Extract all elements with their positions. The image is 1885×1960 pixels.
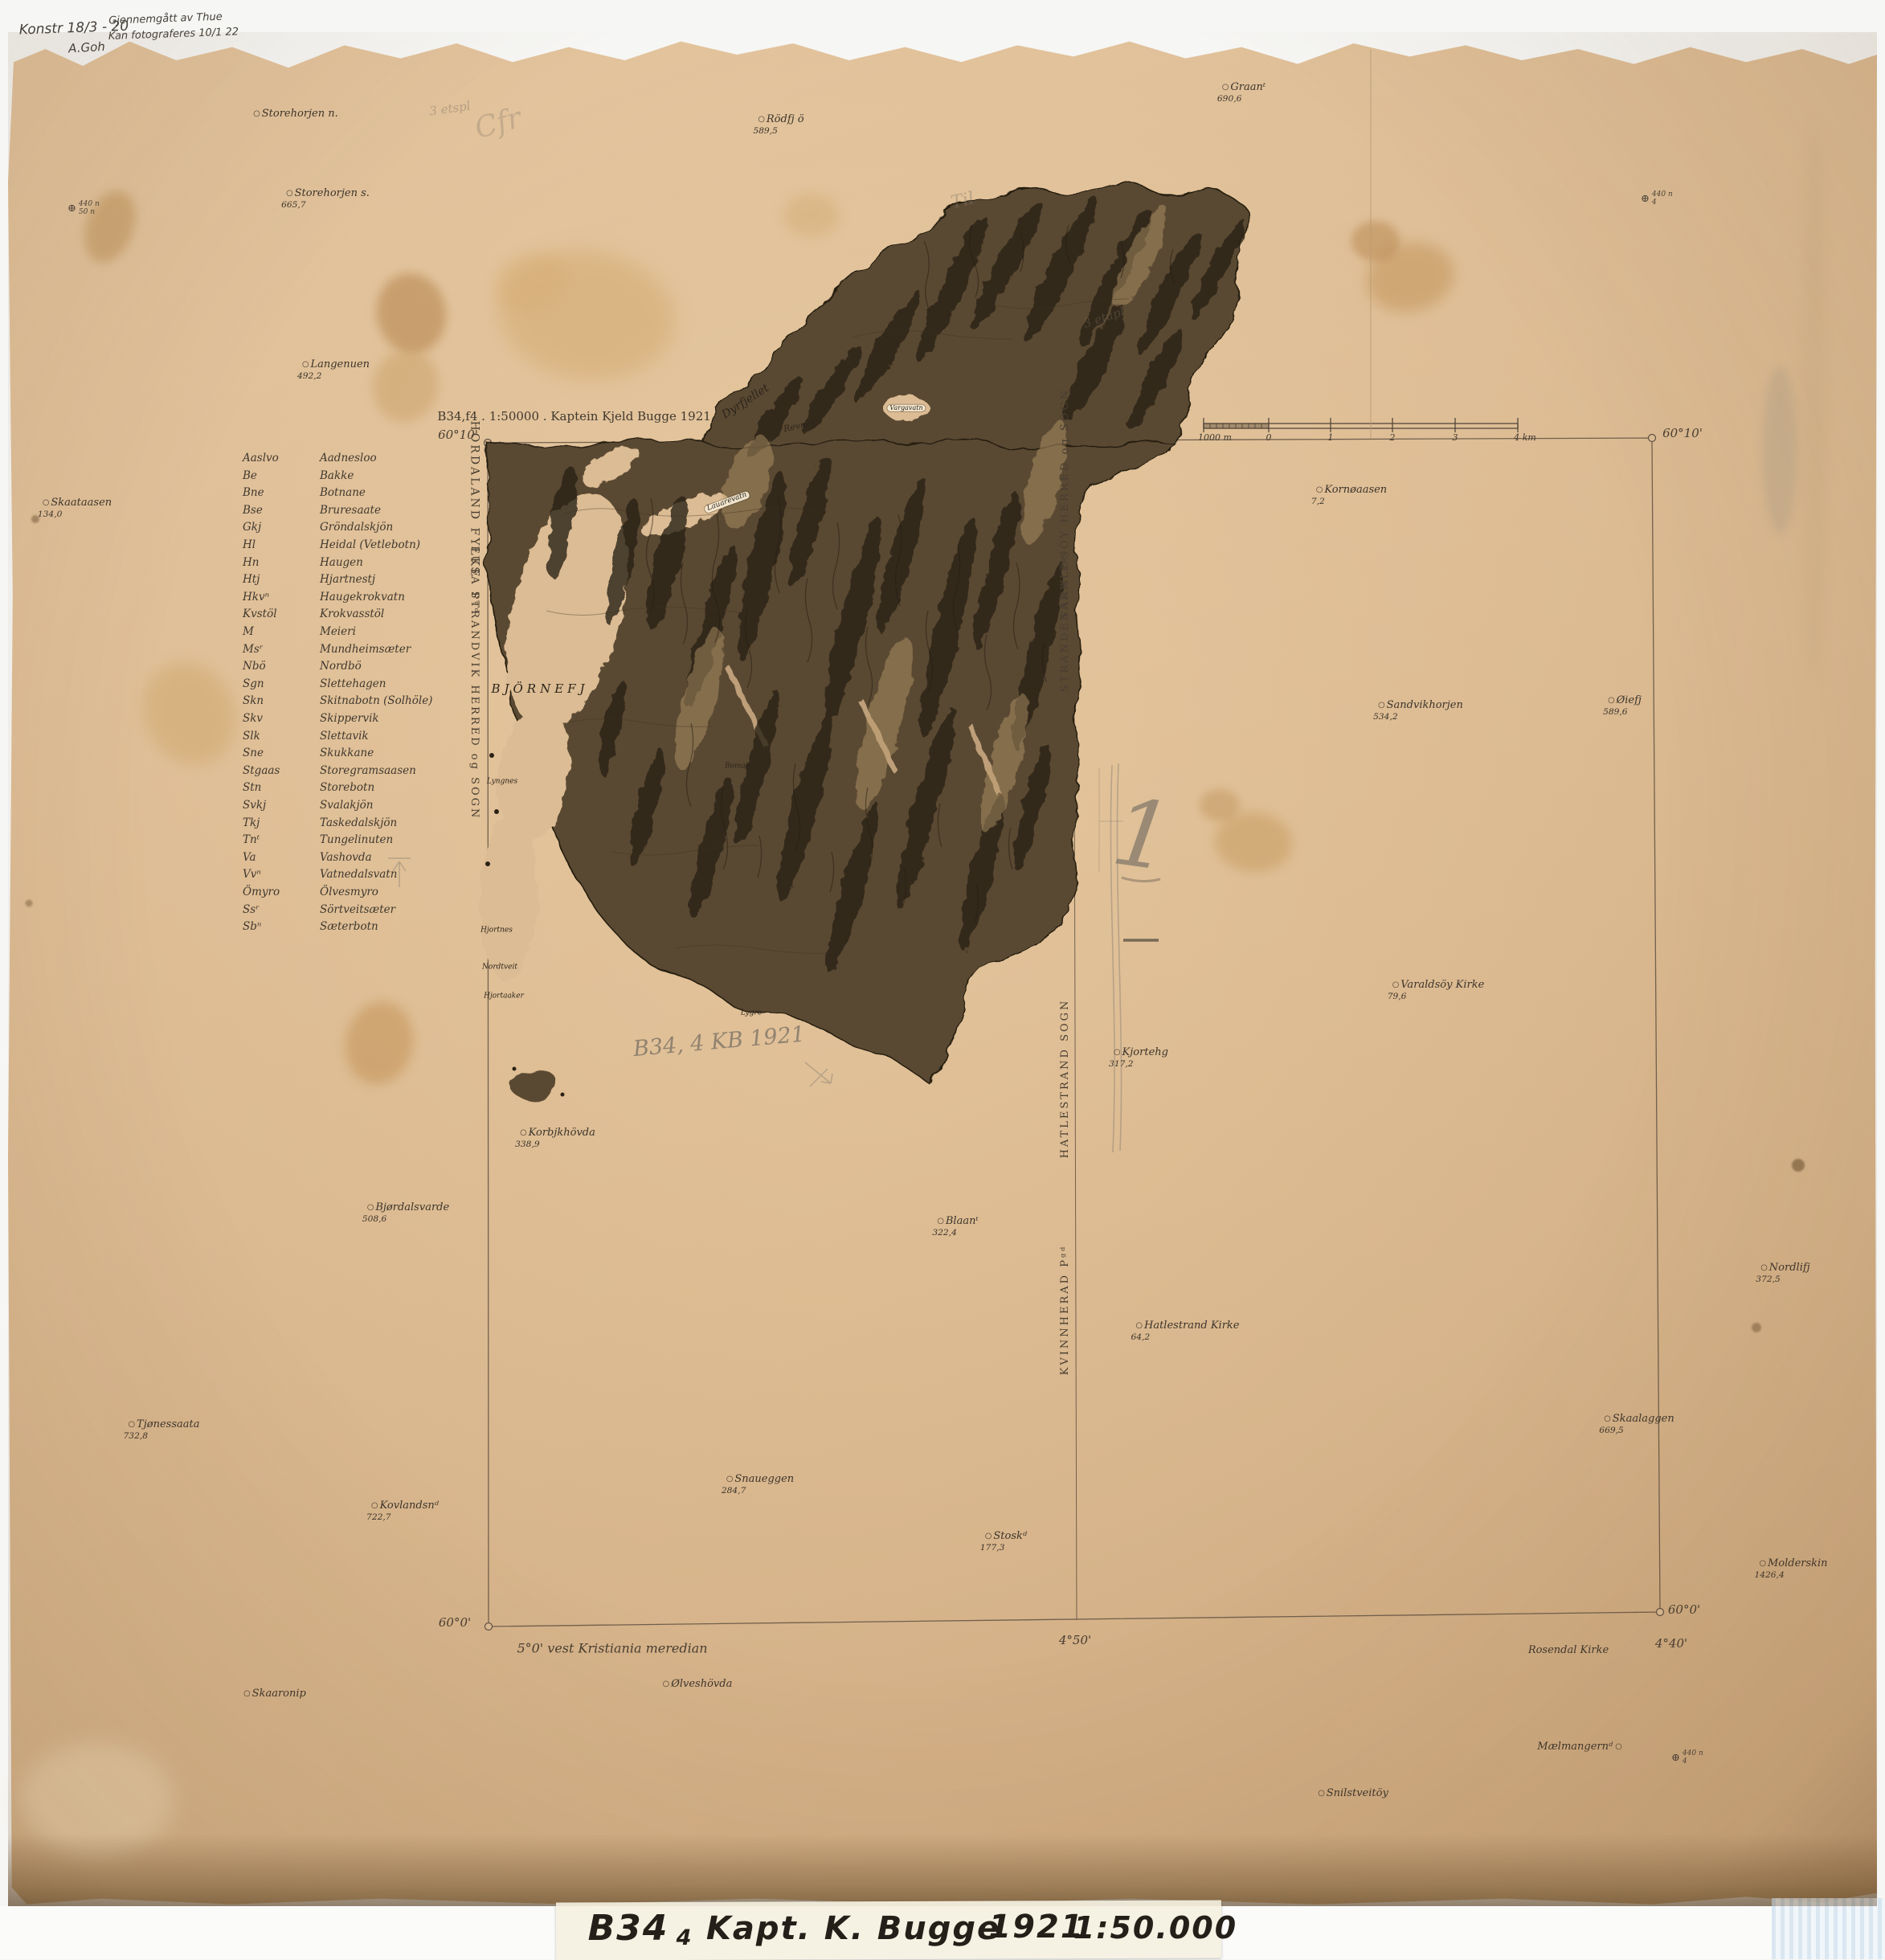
archive-note: Gjennemgått av Thue (108, 12, 223, 27)
paper-sheet (8, 32, 1877, 1906)
caption-part-text: 4 (677, 1925, 693, 1950)
caption-part: 4 (677, 1927, 693, 1950)
archive-note-text: Kan fotograferes 10/1 22 (108, 26, 239, 43)
archive-note-text: Konstr 18/3 - 20 (18, 18, 129, 39)
caption-part: 1:50.000 (1073, 1913, 1237, 1945)
caption-part-text: Kapt. K. Bugge (706, 1910, 1000, 1947)
archive-note: Kan fotograferes 10/1 22 (108, 27, 239, 42)
caption-part-text: 1:50.000 (1073, 1910, 1237, 1946)
archive-note: A.Goh (68, 41, 105, 55)
caption-part: 1921 (988, 1910, 1084, 1944)
archive-note: Konstr 18/3 - 20 (19, 20, 129, 39)
scan-edge-artifact (1772, 1898, 1885, 1959)
caption-part-text: 1921 (988, 1909, 1084, 1946)
archive-note-text: A.Goh (68, 39, 106, 55)
caption-part-text: B34 (588, 1908, 669, 1949)
scanned-map-sheet: B34,f4 . 1:50000 . Kaptein Kjeld Bugge 1… (0, 0, 1885, 1959)
archive-note-text: Gjennemgått av Thue (108, 11, 223, 27)
caption-part: Kapt. K. Bugge (706, 1912, 1000, 1946)
caption-part: B34 (588, 1910, 669, 1947)
